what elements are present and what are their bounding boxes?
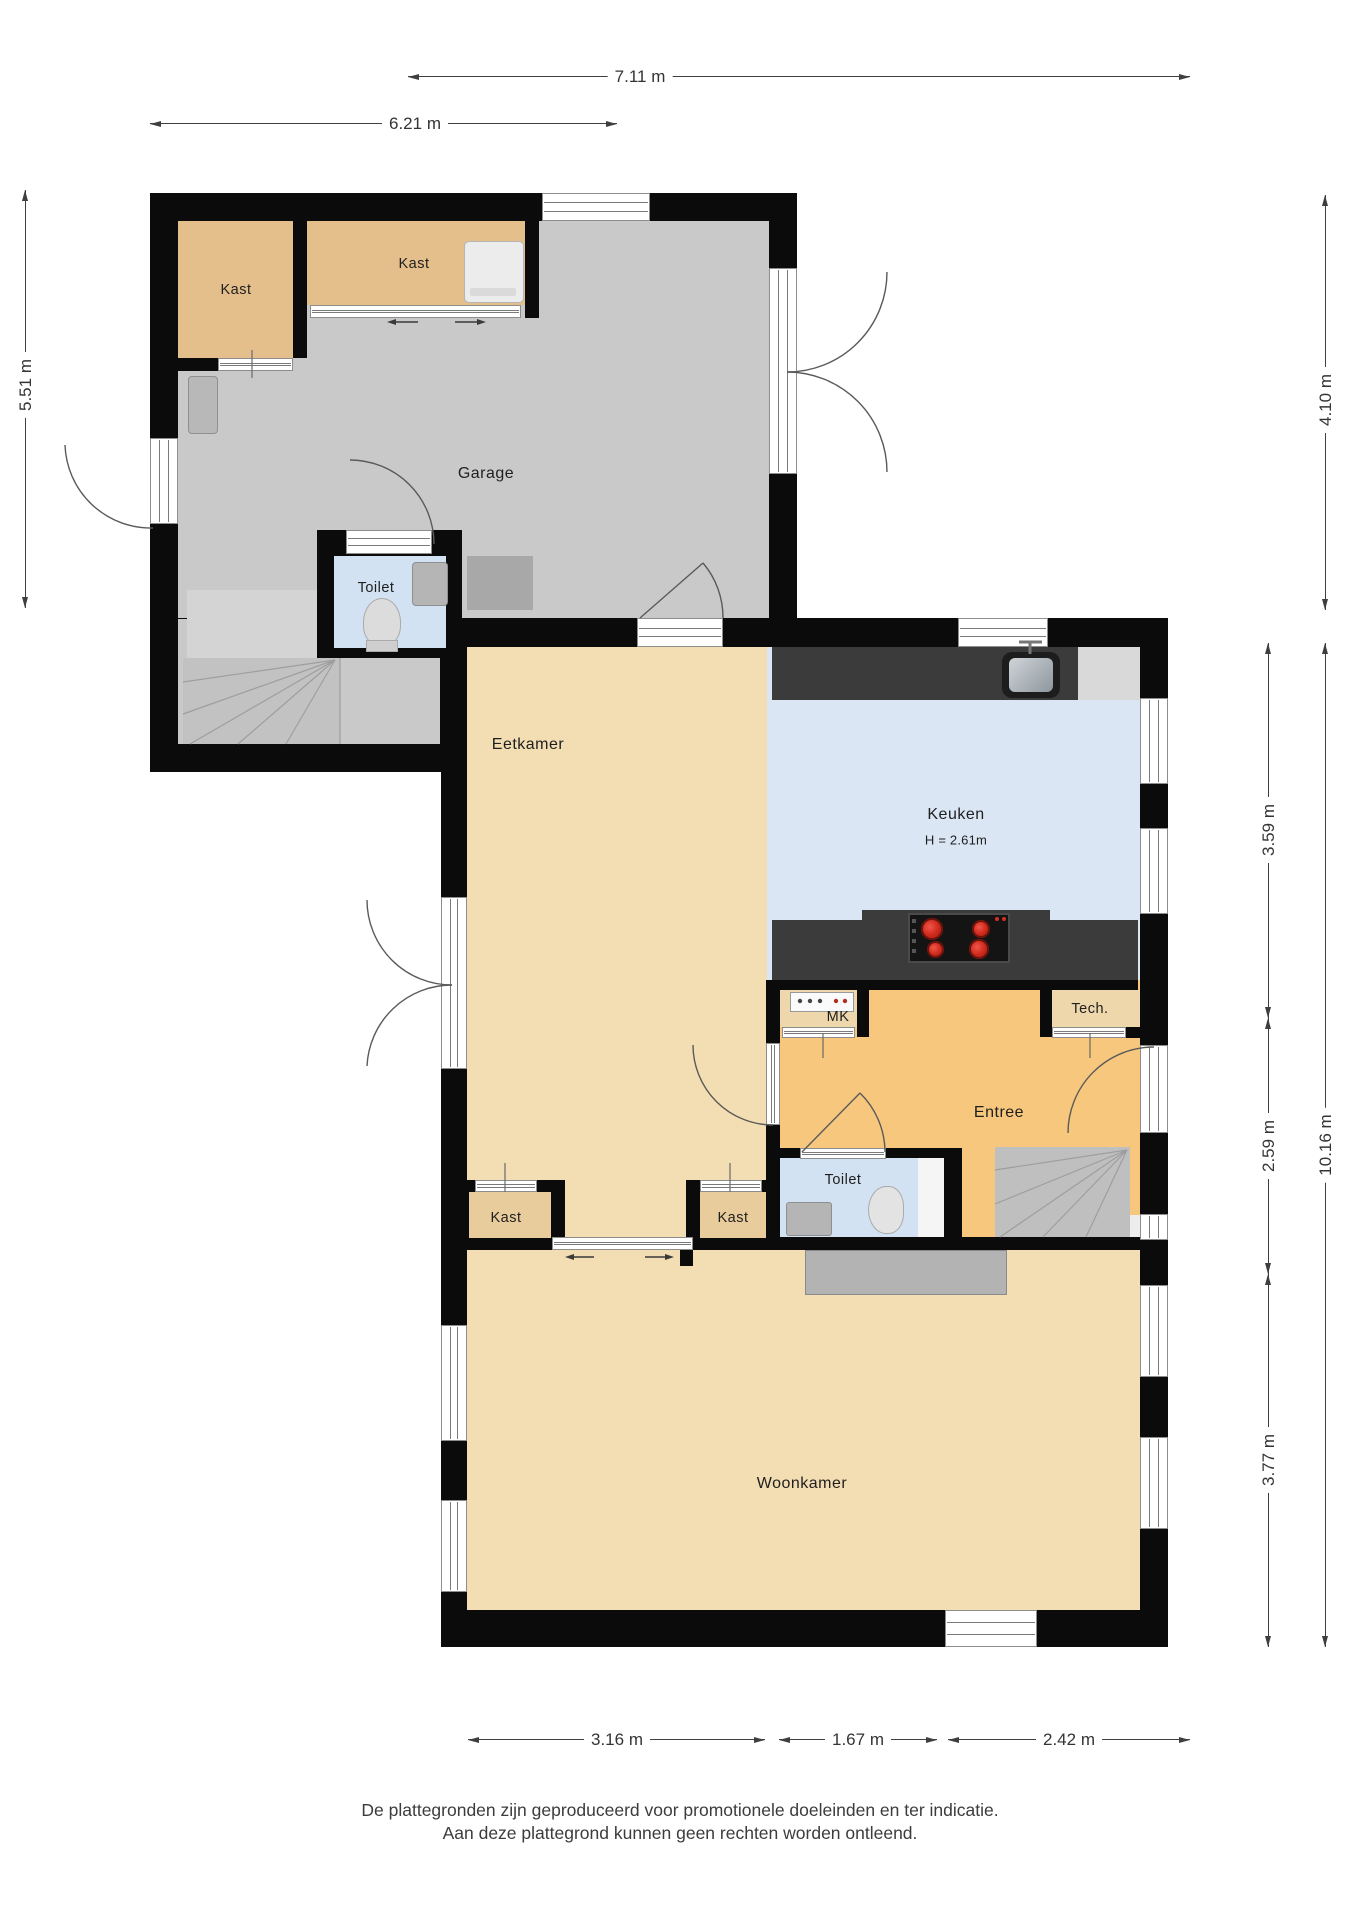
door-arc xyxy=(65,445,153,528)
arrowhead-icon xyxy=(779,1737,790,1743)
french-doors-eetkamer xyxy=(441,897,467,1069)
arrowhead-icon xyxy=(22,597,28,608)
arrowhead-icon xyxy=(1265,1007,1271,1018)
toilet-bowl xyxy=(363,598,401,646)
door-kast-left xyxy=(475,1180,537,1192)
hand-basin xyxy=(412,562,448,606)
window-woonkamer-left-2 xyxy=(441,1500,467,1592)
wall xyxy=(680,1250,693,1266)
disclaimer-line-2: Aan deze plattegrond kunnen geen rechten… xyxy=(443,1823,918,1844)
door-eetkamer-to-entree xyxy=(766,1043,780,1125)
window-keuken-right-2 xyxy=(1140,828,1168,914)
label-kast: Kast xyxy=(398,256,429,272)
toilet-cistern xyxy=(366,640,398,652)
dim-keuken-depth: 3.59 m xyxy=(1259,797,1279,863)
arrowhead-icon xyxy=(948,1737,959,1743)
toilet-fixture-panel xyxy=(918,1158,944,1237)
arrowhead-icon xyxy=(1322,195,1328,206)
label-tech: Tech. xyxy=(1071,1001,1108,1017)
door-tech xyxy=(1052,1027,1126,1038)
door-garage-to-eetkamer xyxy=(637,618,723,647)
arrowhead-icon xyxy=(926,1737,937,1743)
label-toilet: Toilet xyxy=(358,580,395,596)
arrowhead-icon xyxy=(1322,1636,1328,1647)
window-woonkamer-right-2 xyxy=(1140,1437,1168,1529)
disclaimer-line-1: De plattegronden zijn geproduceerd voor … xyxy=(361,1800,998,1821)
label-woonkamer: Woonkamer xyxy=(757,1475,847,1493)
arrowhead-icon xyxy=(1265,1274,1271,1285)
arrowhead-icon xyxy=(1179,74,1190,80)
garage-door xyxy=(769,268,797,474)
arrowhead-icon xyxy=(1265,1263,1271,1274)
dim-bottom-left: 3.16 m xyxy=(584,1730,650,1750)
sliding-door-kast-left xyxy=(218,358,293,371)
garage-door-arc xyxy=(787,372,887,472)
wall xyxy=(857,990,869,1037)
room-woonkamer xyxy=(467,1250,1140,1610)
window-entree-right xyxy=(1140,1214,1168,1240)
window-garage-top xyxy=(542,193,650,221)
window-keuken-right-1 xyxy=(1140,698,1168,784)
door-garage-side xyxy=(150,438,178,524)
sliding-door-woonkamer xyxy=(552,1237,693,1250)
label-toilet: Toilet xyxy=(825,1172,862,1188)
toilet-bowl xyxy=(868,1186,904,1234)
door-mk xyxy=(782,1027,855,1038)
burner xyxy=(927,941,944,958)
arrowhead-icon xyxy=(1265,1636,1271,1647)
dim-bottom-right: 2.42 m xyxy=(1036,1730,1102,1750)
wall xyxy=(293,221,307,358)
arrowhead-icon xyxy=(1179,1737,1190,1743)
washing-machine-front xyxy=(470,288,516,296)
arrowhead-icon xyxy=(22,190,28,201)
stairs-entree xyxy=(995,1147,1130,1237)
window-woonkamer-right-1 xyxy=(1140,1285,1168,1377)
label-kast: Kast xyxy=(220,282,251,298)
wall xyxy=(525,221,539,318)
dim-top-width: 7.11 m xyxy=(608,67,673,87)
label-keuken: Keuken xyxy=(927,806,984,824)
stove-knob xyxy=(912,939,916,943)
arrowhead-icon xyxy=(150,121,161,127)
wall xyxy=(772,980,1138,990)
arrowhead-icon xyxy=(754,1737,765,1743)
label-eetkamer: Eetkamer xyxy=(492,736,564,754)
window-woonkamer-bottom xyxy=(945,1610,1037,1647)
label-keuken-height: H = 2.61m xyxy=(925,833,987,848)
workbench xyxy=(467,556,533,610)
arrowhead-icon xyxy=(606,121,617,127)
dim-total-depth: 10.16 m xyxy=(1316,1107,1336,1182)
floor-plan: Garage Kast Kast Toilet Eetkamer Keuken … xyxy=(0,0,1358,1920)
burner xyxy=(972,920,990,938)
door-toilet-garage xyxy=(346,530,432,554)
wall xyxy=(178,358,218,371)
stove-knob xyxy=(912,929,916,933)
dim-right-upper: 4.10 m xyxy=(1316,367,1336,433)
arrowhead-icon xyxy=(1322,599,1328,610)
wall xyxy=(1126,1027,1140,1038)
arrowhead-icon xyxy=(1322,643,1328,654)
stove-knob xyxy=(912,919,916,923)
door-kast-right xyxy=(700,1180,762,1192)
label-entree: Entree xyxy=(974,1104,1024,1122)
arrowhead-icon xyxy=(1265,1018,1271,1029)
window-woonkamer-left-1 xyxy=(441,1325,467,1441)
dim-woonkamer-depth: 3.77 m xyxy=(1259,1427,1279,1493)
burner xyxy=(969,939,989,959)
hand-basin xyxy=(786,1202,832,1236)
garage-door-arc xyxy=(787,272,887,372)
label-kast: Kast xyxy=(717,1210,748,1226)
window-keuken-top xyxy=(958,618,1048,647)
wall xyxy=(1040,990,1052,1037)
arrowhead-icon xyxy=(408,74,419,80)
kitchen-appliance xyxy=(1078,647,1140,700)
burner xyxy=(921,918,943,940)
stair-landing-lower xyxy=(340,658,440,744)
dim-garage-height: 5.51 m xyxy=(16,352,36,418)
kitchen-sink-basin xyxy=(1009,658,1053,692)
sliding-door-kast-top xyxy=(310,305,521,318)
label-mk: MK xyxy=(827,1009,850,1025)
dim-bottom-middle: 1.67 m xyxy=(825,1730,891,1750)
label-kast: Kast xyxy=(490,1210,521,1226)
dim-garage-width: 6.21 m xyxy=(382,114,448,134)
arrowhead-icon xyxy=(468,1737,479,1743)
french-door-arc xyxy=(367,900,452,985)
sideboard xyxy=(805,1250,1007,1295)
front-door xyxy=(1140,1045,1168,1133)
radiator xyxy=(188,376,218,434)
french-door-arc xyxy=(367,985,452,1066)
arrowhead-icon xyxy=(1265,643,1271,654)
stairs-garage xyxy=(183,658,340,744)
door-toilet-entree xyxy=(800,1148,886,1159)
dim-entree-depth: 2.59 m xyxy=(1259,1113,1279,1179)
label-garage: Garage xyxy=(458,465,514,483)
stair-landing-upper xyxy=(187,590,317,658)
dim-line xyxy=(408,76,1190,77)
stove-knob xyxy=(912,949,916,953)
